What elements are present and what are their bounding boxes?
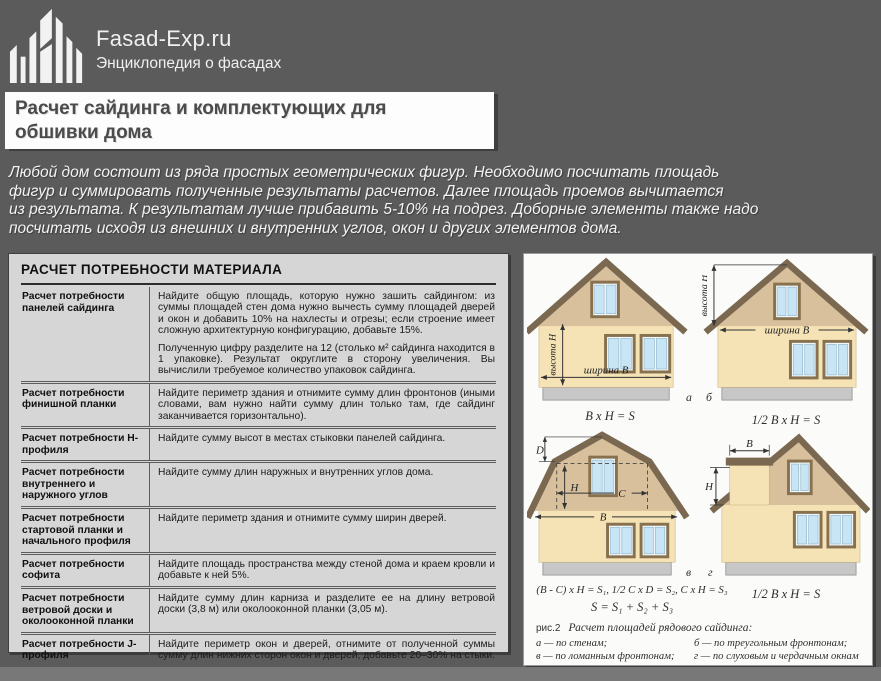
wall-window: [640, 334, 672, 373]
wall-window: [826, 511, 856, 548]
description-paragraph: Полученную цифру разделите на 12 (стольк…: [158, 343, 495, 377]
foundation: [722, 387, 852, 400]
h-label: H: [570, 482, 580, 494]
material-label: Расчет потребности стартовой планки и на…: [21, 509, 149, 552]
h-label: H: [704, 481, 714, 493]
buildings-logo-icon: [8, 5, 86, 83]
table-row: Расчет потребности Н-профиля Найдите сум…: [21, 426, 496, 460]
formula-a: B x H = S: [524, 409, 696, 424]
material-label: Расчет потребности внутреннего и наружно…: [21, 463, 149, 506]
caption-title-line: рис.2Расчет площадей рядового сайдинга:: [536, 622, 866, 634]
table-row: Расчет потребности ветровой доски и окол…: [21, 586, 496, 632]
materials-table-title: РАСЧЕТ ПОТРЕБНОСТИ МАТЕРИАЛА: [21, 262, 496, 285]
wall-window: [606, 523, 636, 559]
table-row: Расчет потребности финишной планки Найди…: [21, 381, 496, 426]
materials-table: Расчет потребности панелей сайдинга Найд…: [21, 287, 496, 681]
legend-item: б — по треугольным фронтонам;: [694, 638, 866, 649]
house-a-diagram: высота H ширина B а: [527, 257, 695, 407]
intro-line: Любой дом состоит из ряда простых геомет…: [9, 164, 874, 183]
height-label: высота H: [702, 274, 710, 317]
c-label: C: [618, 488, 626, 500]
table-row: Расчет потребности панелей сайдинга Найд…: [21, 287, 496, 381]
house-v-diagram: D H C B в: [527, 430, 695, 580]
material-label: Расчет потребности панелей сайдинга: [21, 287, 149, 381]
house-a-letter: а: [686, 390, 692, 404]
house-g-letter: г: [708, 565, 713, 579]
intro-line: фигур и суммировать полученные результат…: [9, 183, 874, 202]
diagrams-panel: высота H ширина B а B x H = S: [523, 253, 873, 666]
gable-window: [590, 281, 620, 319]
formula-g: 1/2 B x H = S: [702, 587, 870, 602]
gable-window: [787, 460, 813, 496]
footer-strip: [0, 667, 881, 681]
width-label: ширина B: [584, 364, 629, 376]
material-label: Расчет потребности финишной планки: [21, 384, 149, 426]
caption-legend: а — по стенам; б — по треугольным фронто…: [536, 638, 866, 662]
title-box: Расчет сайдинга и комплектующих для обши…: [5, 92, 494, 149]
intro-line: из результата. К результатам лучше приба…: [9, 201, 874, 220]
house-v-letter: в: [686, 565, 691, 579]
dormer: [726, 458, 773, 505]
material-description: Найдите периметр здания и отнимите сумму…: [149, 509, 496, 552]
brand-block: Fasad-Exp.ru Энциклопедия о фасадах: [96, 26, 281, 73]
infographic-page: Fasad-Exp.ru Энциклопедия о фасадах Расч…: [0, 0, 881, 681]
gable-window: [773, 283, 801, 321]
figure-number: рис.2: [536, 623, 561, 634]
house-g-diagram: B H г: [702, 430, 870, 580]
material-description: Найдите сумму длин карниза и разделите е…: [149, 589, 496, 632]
caption-title: Расчет площадей рядового сайдинга:: [569, 622, 753, 634]
material-label: Расчет потребности Н-профиля: [21, 429, 149, 460]
material-description: Найдите сумму длин наружных и внутренних…: [149, 463, 496, 506]
table-row: Расчет потребности J-профиля Найдите пер…: [21, 632, 496, 666]
wall-window: [793, 511, 823, 548]
wall-window: [789, 340, 819, 379]
site-header: Fasad-Exp.ru Энциклопедия о фасадах: [0, 0, 881, 90]
intro-text: Любой дом состоит из ряда простых геомет…: [9, 164, 874, 238]
material-description: Найдите общую площадь, которую нужно заш…: [149, 287, 496, 381]
material-description: Найдите площадь пространства между стено…: [149, 555, 496, 586]
intro-line: посчитать исходя из внешних и внутренних…: [9, 220, 874, 239]
b-label: B: [600, 511, 607, 523]
material-label: Расчет потребности софита: [21, 555, 149, 586]
b-dimension: B: [730, 438, 769, 456]
brand-tagline: Энциклопедия о фасадах: [96, 55, 281, 73]
material-description: Найдите периметр здания и отнимите сумму…: [149, 384, 496, 426]
house-b-diagram: высота H ширина B б: [702, 257, 870, 407]
gable-window: [588, 456, 618, 497]
foundation: [726, 562, 856, 575]
material-label: Расчет потребности J-профиля: [21, 635, 149, 666]
house-b-letter: б: [706, 390, 713, 404]
table-row: Расчет потребности софита Найдите площад…: [21, 552, 496, 586]
legend-item: г — по слуховым и чердачным окнам: [694, 651, 866, 662]
figure-caption: рис.2Расчет площадей рядового сайдинга: …: [536, 622, 866, 662]
page-title: Расчет сайдинга и комплектующих для обши…: [15, 97, 465, 145]
material-description: Найдите сумму высот в местах стыковки па…: [149, 429, 496, 460]
formula-b: 1/2 B x H = S: [700, 413, 872, 428]
wall-window: [640, 523, 670, 559]
legend-item: в — по ломанным фронтонам;: [536, 651, 694, 662]
material-description: Найдите периметр окон и дверей, отнимите…: [149, 635, 496, 666]
materials-table-panel: РАСЧЕТ ПОТРЕБНОСТИ МАТЕРИАЛА Расчет потр…: [8, 253, 509, 653]
foundation: [543, 562, 671, 575]
height-label: высота H: [548, 333, 559, 376]
foundation: [543, 387, 669, 400]
description-paragraph: Найдите общую площадь, которую нужно заш…: [158, 291, 495, 337]
table-row: Расчет потребности внутреннего и наружно…: [21, 460, 496, 506]
legend-item: а — по стенам;: [536, 638, 694, 649]
brand-name: Fasad-Exp.ru: [96, 26, 281, 52]
wall-window: [823, 340, 853, 379]
formula-v-line2: S = S₁ + S₂ + S₃: [524, 600, 740, 615]
table-row: Расчет потребности стартовой планки и на…: [21, 506, 496, 552]
b-label: B: [746, 438, 753, 450]
d-label: D: [535, 445, 544, 457]
width-label: ширина B: [765, 324, 810, 336]
material-label: Расчет потребности ветровой доски и окол…: [21, 589, 149, 632]
